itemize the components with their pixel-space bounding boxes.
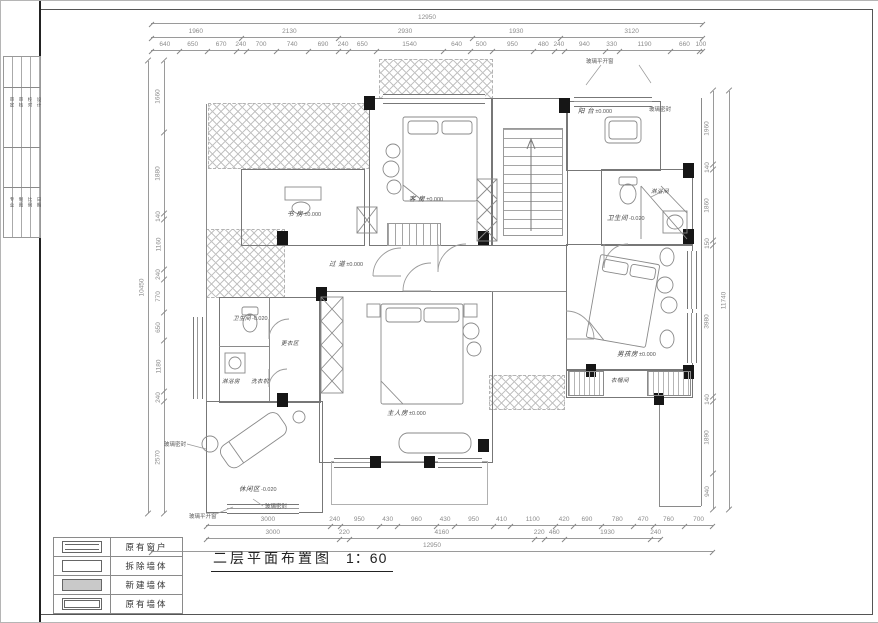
room-label-balcony: 阳 台±0.000 [578,105,612,115]
legend-row: 原有窗户 [54,538,182,557]
annotation-glass-seal-bottom: 玻璃密封 [265,502,287,510]
annotation-glass-seal-right: 玻璃密封 [649,105,671,113]
legend-label: 原有窗户 [111,541,182,553]
room-label-corridor: 过 道±0.000 [329,258,363,268]
annotation-glass-casement-bottom: 玻璃平开窗 [189,512,217,520]
floor-plan-sheet: 审定 审核 校对 设计 专业 制图 比例 日期 12950 1960213029… [0,0,878,623]
drawing-title-scale: 1：60 [346,550,387,566]
legend-row: 拆除墙体 [54,557,182,576]
annotation-glass-casement-top: 玻璃平开窗 [586,57,614,65]
room-label-bath-left: 卫生间-0.020 [233,314,268,322]
legend-swatch-existing-wall [62,598,102,610]
legend-row: 新建墙体 [54,576,182,595]
room-label-dressing: 更衣区 [281,339,299,347]
room-label-cloakroom: 衣帽间 [611,376,629,384]
drawing-title: 二层平面布置图1：60 [211,548,393,572]
room-label-laundry: 洗衣机 [251,377,269,385]
furniture-and-doors-layer [1,1,878,622]
room-label-shower-left: 淋浴房 [222,377,240,385]
legend-row: 原有墙体 [54,595,182,613]
legend-swatch-demolish [62,560,102,572]
room-label-master: 主人房±0.000 [387,407,426,417]
legend-label: 原有墙体 [111,598,182,610]
legend-swatch-window [62,541,102,553]
legend-label: 拆除墙体 [111,560,182,572]
drawing-title-text: 二层平面布置图 [213,550,332,566]
legend-label: 新建墙体 [111,579,182,591]
room-label-shower-right: 淋浴间 [651,187,669,195]
room-label-guest: 客 房±0.000 [409,193,443,203]
legend-swatch-new-wall [62,579,102,591]
room-label-study: 书 房±0.000 [287,208,321,218]
room-label-bath-right: 卫生间-0.020 [607,212,645,222]
room-label-leisure: 休闲区-0.020 [239,483,277,493]
room-label-boy: 男孩房±0.000 [617,348,656,358]
annotation-glass-seal-left: 玻璃密封 [164,440,186,448]
legend: 原有窗户 拆除墙体 新建墙体 原有墙体 [53,537,183,614]
